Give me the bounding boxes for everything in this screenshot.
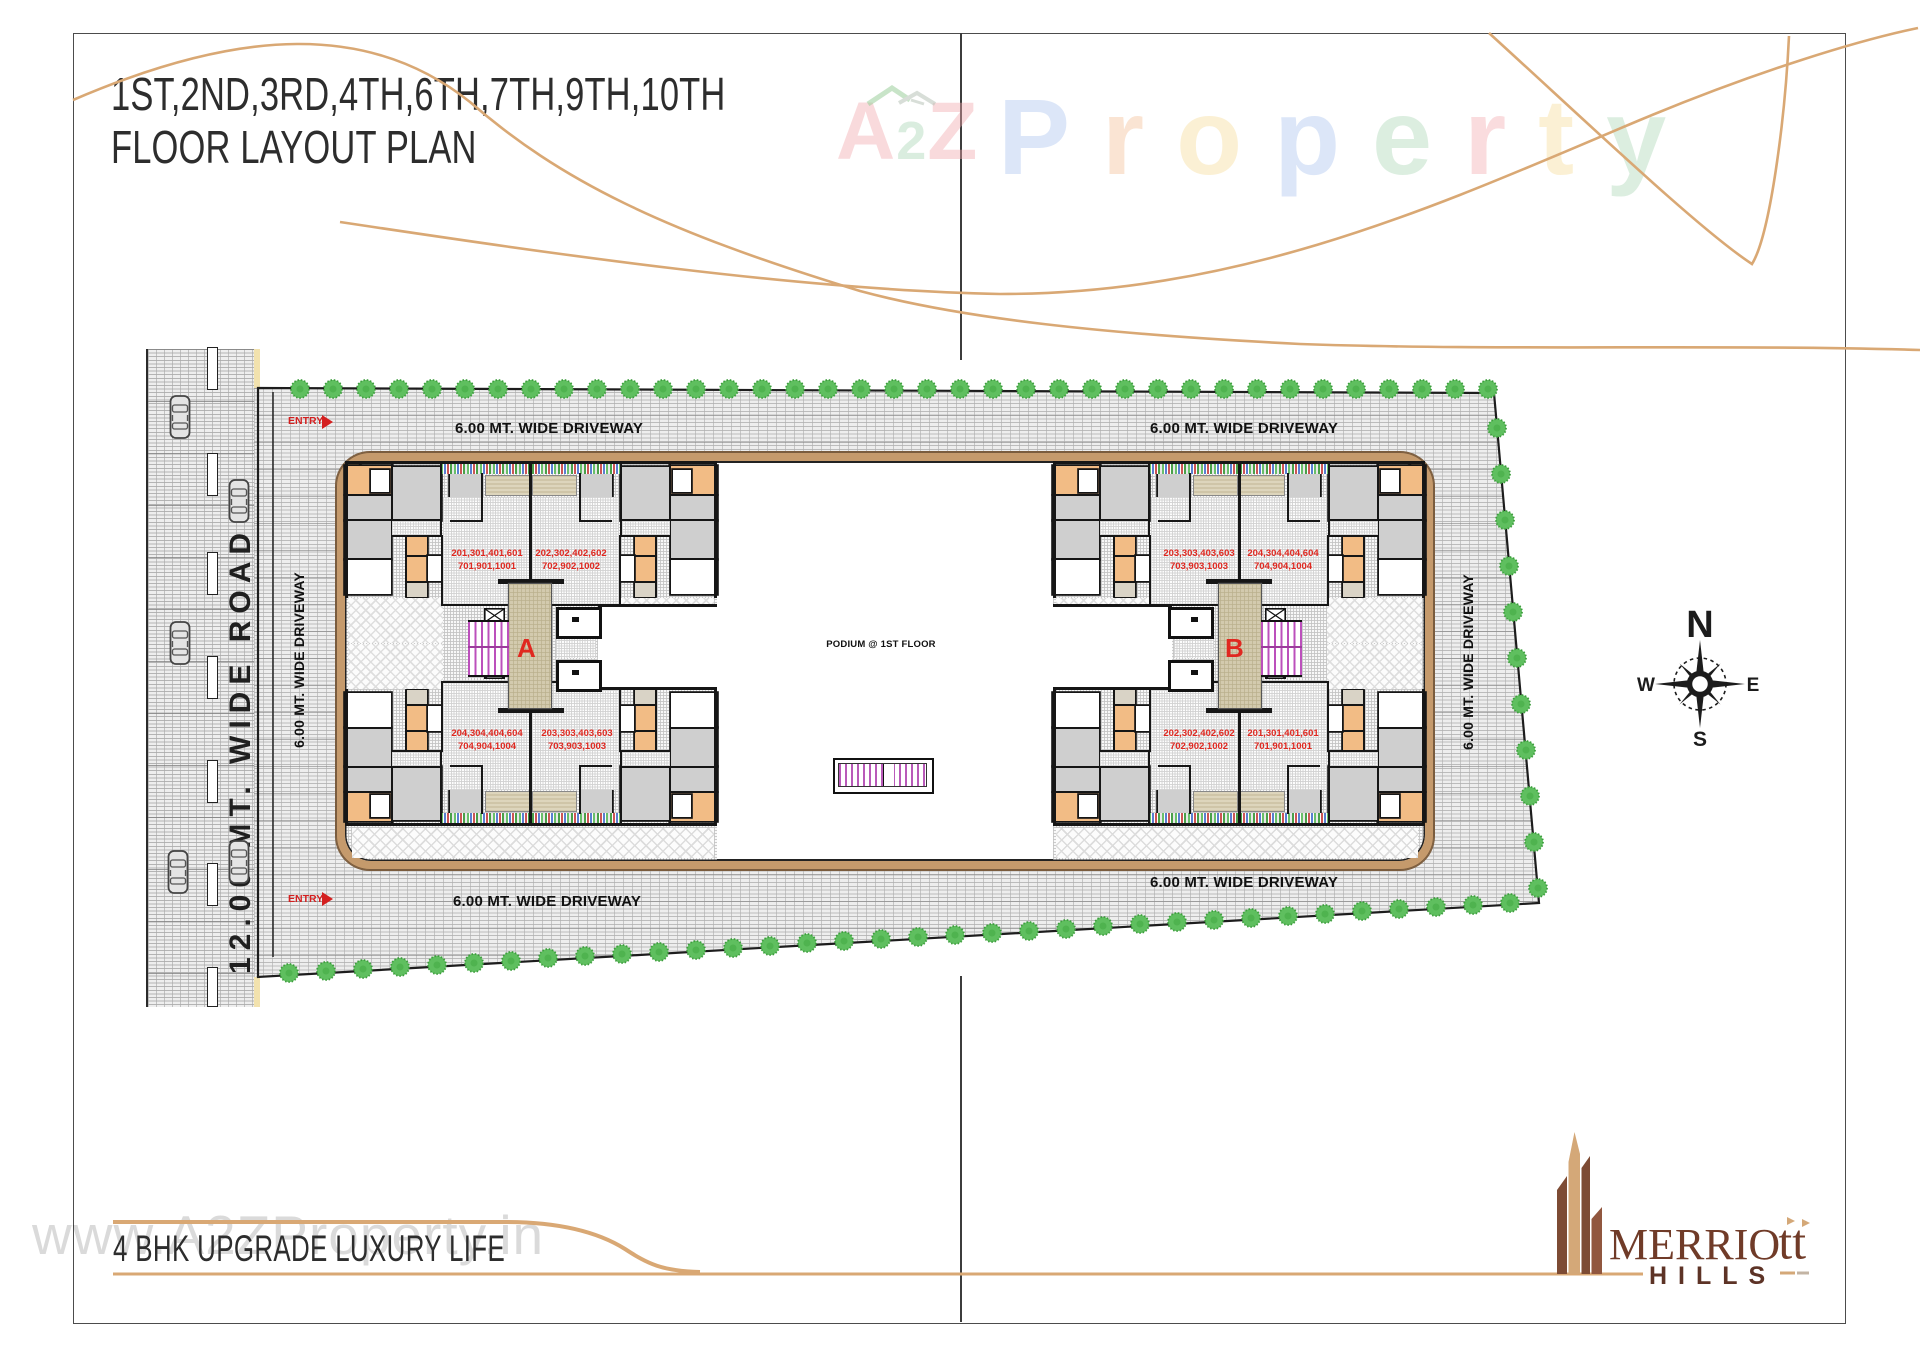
svg-text:E: E bbox=[1747, 675, 1760, 696]
svg-text:N: N bbox=[1686, 604, 1713, 646]
svg-text:S: S bbox=[1693, 728, 1707, 751]
svg-text:W: W bbox=[1637, 675, 1655, 696]
